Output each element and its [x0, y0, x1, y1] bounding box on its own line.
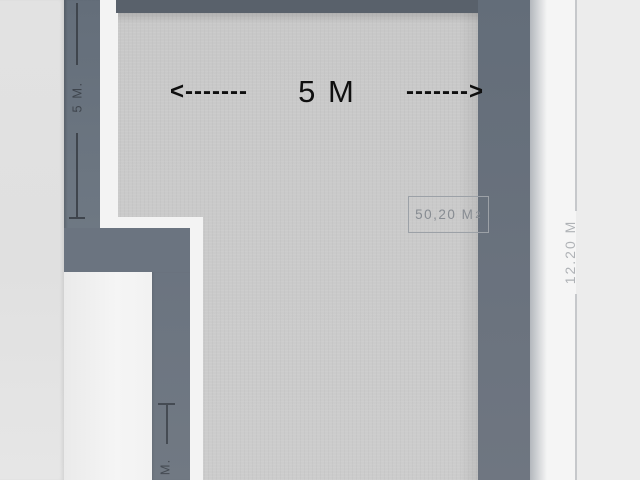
area-label-value: 50,20 M: [415, 207, 474, 222]
area-label-box: 50,20 M2: [408, 196, 489, 233]
dimension-top-label: 5 M: [298, 74, 356, 110]
exterior-bottom-left: [64, 272, 152, 480]
floor-shadow-under-top-wall: [116, 13, 478, 23]
dimension-top-arrow-right: ------->: [406, 78, 484, 106]
wall-inner-edge-lower: [190, 217, 203, 480]
dimension-left-tick: [69, 217, 85, 219]
wall-inner-edge-left: [99, 0, 118, 218]
dimension-bottom-left-label: M.: [158, 459, 173, 475]
wall-step: [64, 228, 190, 272]
dimension-top: <------- 5 M ------->: [170, 72, 484, 112]
dimension-right-label: 12.20 M: [562, 220, 578, 285]
dimension-top-arrow-left: <-------: [170, 78, 248, 106]
exterior-left: [0, 0, 64, 480]
dimension-right-line-upper: [575, 0, 577, 211]
dimension-left-line-upper: [76, 3, 78, 65]
wall-right: [478, 0, 530, 480]
area-label-superscript: 2: [475, 210, 482, 220]
exterior-right-far: [576, 0, 640, 480]
wall-right-outer-shadow: [530, 0, 547, 480]
dimension-bottom-left-line: [166, 404, 168, 444]
dimension-right-line-lower: [575, 294, 577, 480]
wall-top: [116, 0, 530, 13]
dimension-left-label: 5 M.: [70, 81, 85, 112]
dimension-left-line-lower: [76, 133, 78, 218]
floor-plan-canvas: --> <------- 5 M -------> 5 M. M. 12.20 …: [0, 0, 640, 480]
wall-lower-left: [152, 272, 190, 480]
